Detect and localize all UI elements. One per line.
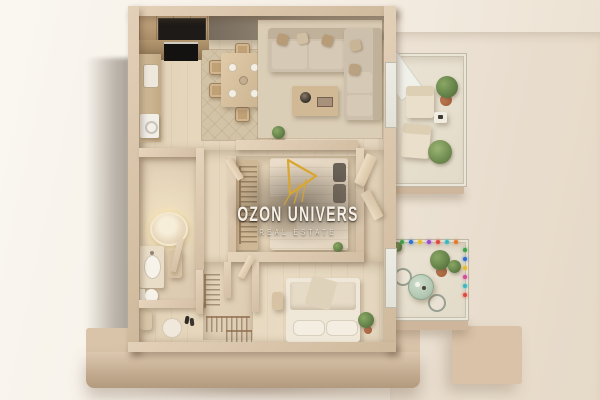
- bedside-bench: [272, 292, 283, 310]
- closet-hanging-clothes: [226, 330, 252, 342]
- neighbor-balcony-slab: [452, 326, 522, 384]
- bed-pillow: [293, 320, 325, 336]
- string-light-bulb: [436, 240, 440, 244]
- faucet: [150, 251, 154, 255]
- watermark-title-text: OZON UNIVERS: [219, 203, 377, 227]
- string-light-bulb: [463, 275, 467, 279]
- place-setting: [228, 63, 237, 72]
- string-light-bulb: [463, 257, 467, 261]
- string-lights-right: [463, 248, 467, 297]
- side-table: [434, 112, 447, 123]
- built-in-oven: [164, 42, 198, 61]
- bed-pillow: [326, 320, 358, 336]
- outer-wall-bottom: [128, 342, 396, 352]
- wall-closet-right: [252, 262, 259, 312]
- master-bed: [286, 278, 360, 342]
- string-light-bulb: [463, 266, 467, 270]
- potted-plant: [436, 76, 458, 98]
- string-light-bulb: [454, 240, 458, 244]
- lounge-chair-cushion: [406, 86, 434, 96]
- outer-wall-top: [128, 6, 396, 16]
- outer-wall-left: [128, 6, 139, 352]
- dining-chair: [235, 107, 250, 122]
- entry-round-rug: [162, 318, 182, 338]
- wall-closet-left: [196, 270, 203, 314]
- round-bistro-table: [408, 274, 434, 300]
- master-plant: [358, 312, 374, 328]
- throw-pillow: [296, 32, 309, 45]
- watermark-title: OZON UNIVERS: [178, 203, 418, 227]
- backdrop-left-shadow: [86, 58, 130, 364]
- potted-plant-small: [448, 260, 461, 273]
- table-setting: [415, 282, 420, 287]
- bistro-balcony-front-face: [386, 316, 468, 330]
- string-light-bulb: [418, 240, 422, 244]
- watermark-subtitle: REAL ESTATE: [178, 228, 418, 237]
- sofa-backrest: [373, 28, 382, 120]
- watermark-logo-icon: [280, 154, 320, 206]
- centerpiece-bowl: [239, 76, 248, 85]
- plinth-front-face: [86, 352, 420, 388]
- table-setting: [422, 286, 426, 290]
- sofa-seat-cushion: [347, 72, 372, 93]
- wall-bathroom-bottom: [139, 300, 203, 308]
- shoes: [190, 318, 195, 326]
- wall-kitchen-bathroom: [139, 148, 199, 157]
- lounge-chair: [406, 86, 434, 118]
- entry-console: [140, 310, 152, 330]
- potted-fern: [428, 140, 452, 164]
- watermark-subtitle-text: REAL ESTATE: [202, 228, 394, 237]
- decor-bowl: [300, 92, 311, 103]
- balcony-door-glass: [385, 62, 397, 128]
- lounge-chair: [401, 123, 432, 159]
- string-light-bulb: [427, 240, 431, 244]
- kitchen-sink: [143, 64, 159, 88]
- lounge-chair-cushion: [403, 123, 432, 135]
- string-light-bulb: [463, 248, 467, 252]
- scene-3d-floor-plan: OZON UNIVERS REAL ESTATE: [0, 0, 600, 400]
- place-setting: [228, 89, 237, 98]
- closet-hanging-clothes: [204, 274, 220, 308]
- console-plant: [272, 126, 285, 139]
- washing-machine: [140, 114, 159, 138]
- wire-chair: [428, 294, 446, 312]
- washer-door: [145, 121, 158, 134]
- stacked-books: [317, 97, 333, 107]
- string-light-bulb: [409, 240, 413, 244]
- string-light-bulb: [463, 293, 467, 297]
- sofa-seat-cushion: [272, 41, 307, 69]
- vanity-sink: [144, 255, 161, 279]
- string-light-bulb: [463, 284, 467, 288]
- bathroom-vanity: [140, 246, 164, 288]
- throw-pillow: [348, 63, 360, 75]
- coffee-table: [292, 86, 338, 116]
- string-light-bulb: [445, 240, 449, 244]
- tray-item: [438, 115, 443, 119]
- potted-plant: [430, 250, 450, 270]
- sofa-seat-cushion: [347, 95, 372, 116]
- wall-closet-divider: [224, 262, 231, 298]
